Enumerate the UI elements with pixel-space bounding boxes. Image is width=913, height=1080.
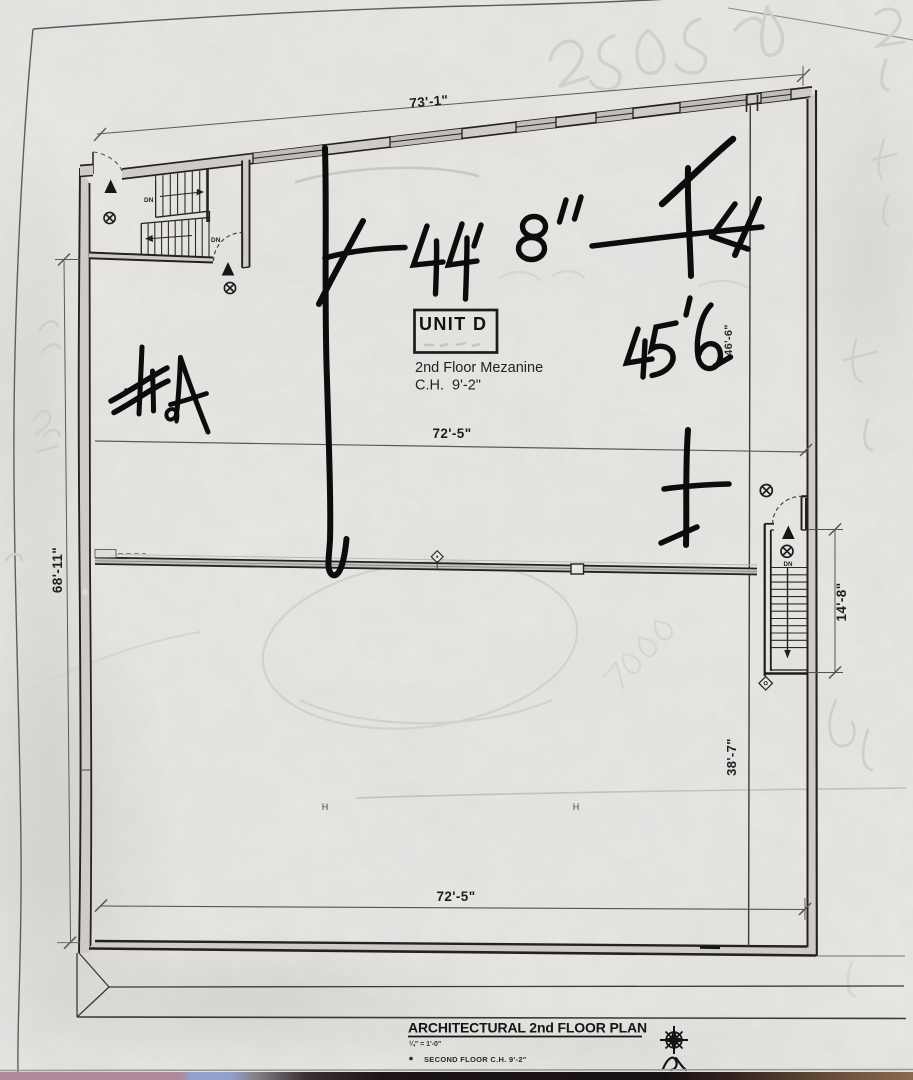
svg-text:14'-8": 14'-8" bbox=[834, 582, 849, 621]
svg-text:72'-5": 72'-5" bbox=[436, 889, 475, 904]
svg-text:72'-5": 72'-5" bbox=[432, 426, 471, 441]
svg-text:C.H. 9'-2": C.H. 9'-2" bbox=[415, 378, 481, 394]
svg-text:DN: DN bbox=[144, 197, 154, 204]
svg-text:SECOND FLOOR C.H. 9'-2": SECOND FLOOR C.H. 9'-2" bbox=[424, 1055, 527, 1064]
svg-text:DN: DN bbox=[211, 237, 221, 244]
svg-text:H: H bbox=[573, 802, 580, 812]
svg-text:38'-7": 38'-7" bbox=[724, 738, 739, 776]
svg-text:46'-6": 46'-6" bbox=[723, 324, 735, 356]
svg-text:UNIT D: UNIT D bbox=[419, 314, 487, 334]
svg-text:2nd Floor Mezanine: 2nd Floor Mezanine bbox=[415, 360, 543, 376]
svg-text:68'-11": 68'-11" bbox=[50, 547, 65, 593]
svg-text:¼" = 1'-0": ¼" = 1'-0" bbox=[409, 1040, 441, 1048]
svg-text:H: H bbox=[322, 802, 329, 812]
svg-text:ARCHITECTURAL 2nd FLOOR PLAN: ARCHITECTURAL 2nd FLOOR PLAN bbox=[408, 1020, 647, 1036]
